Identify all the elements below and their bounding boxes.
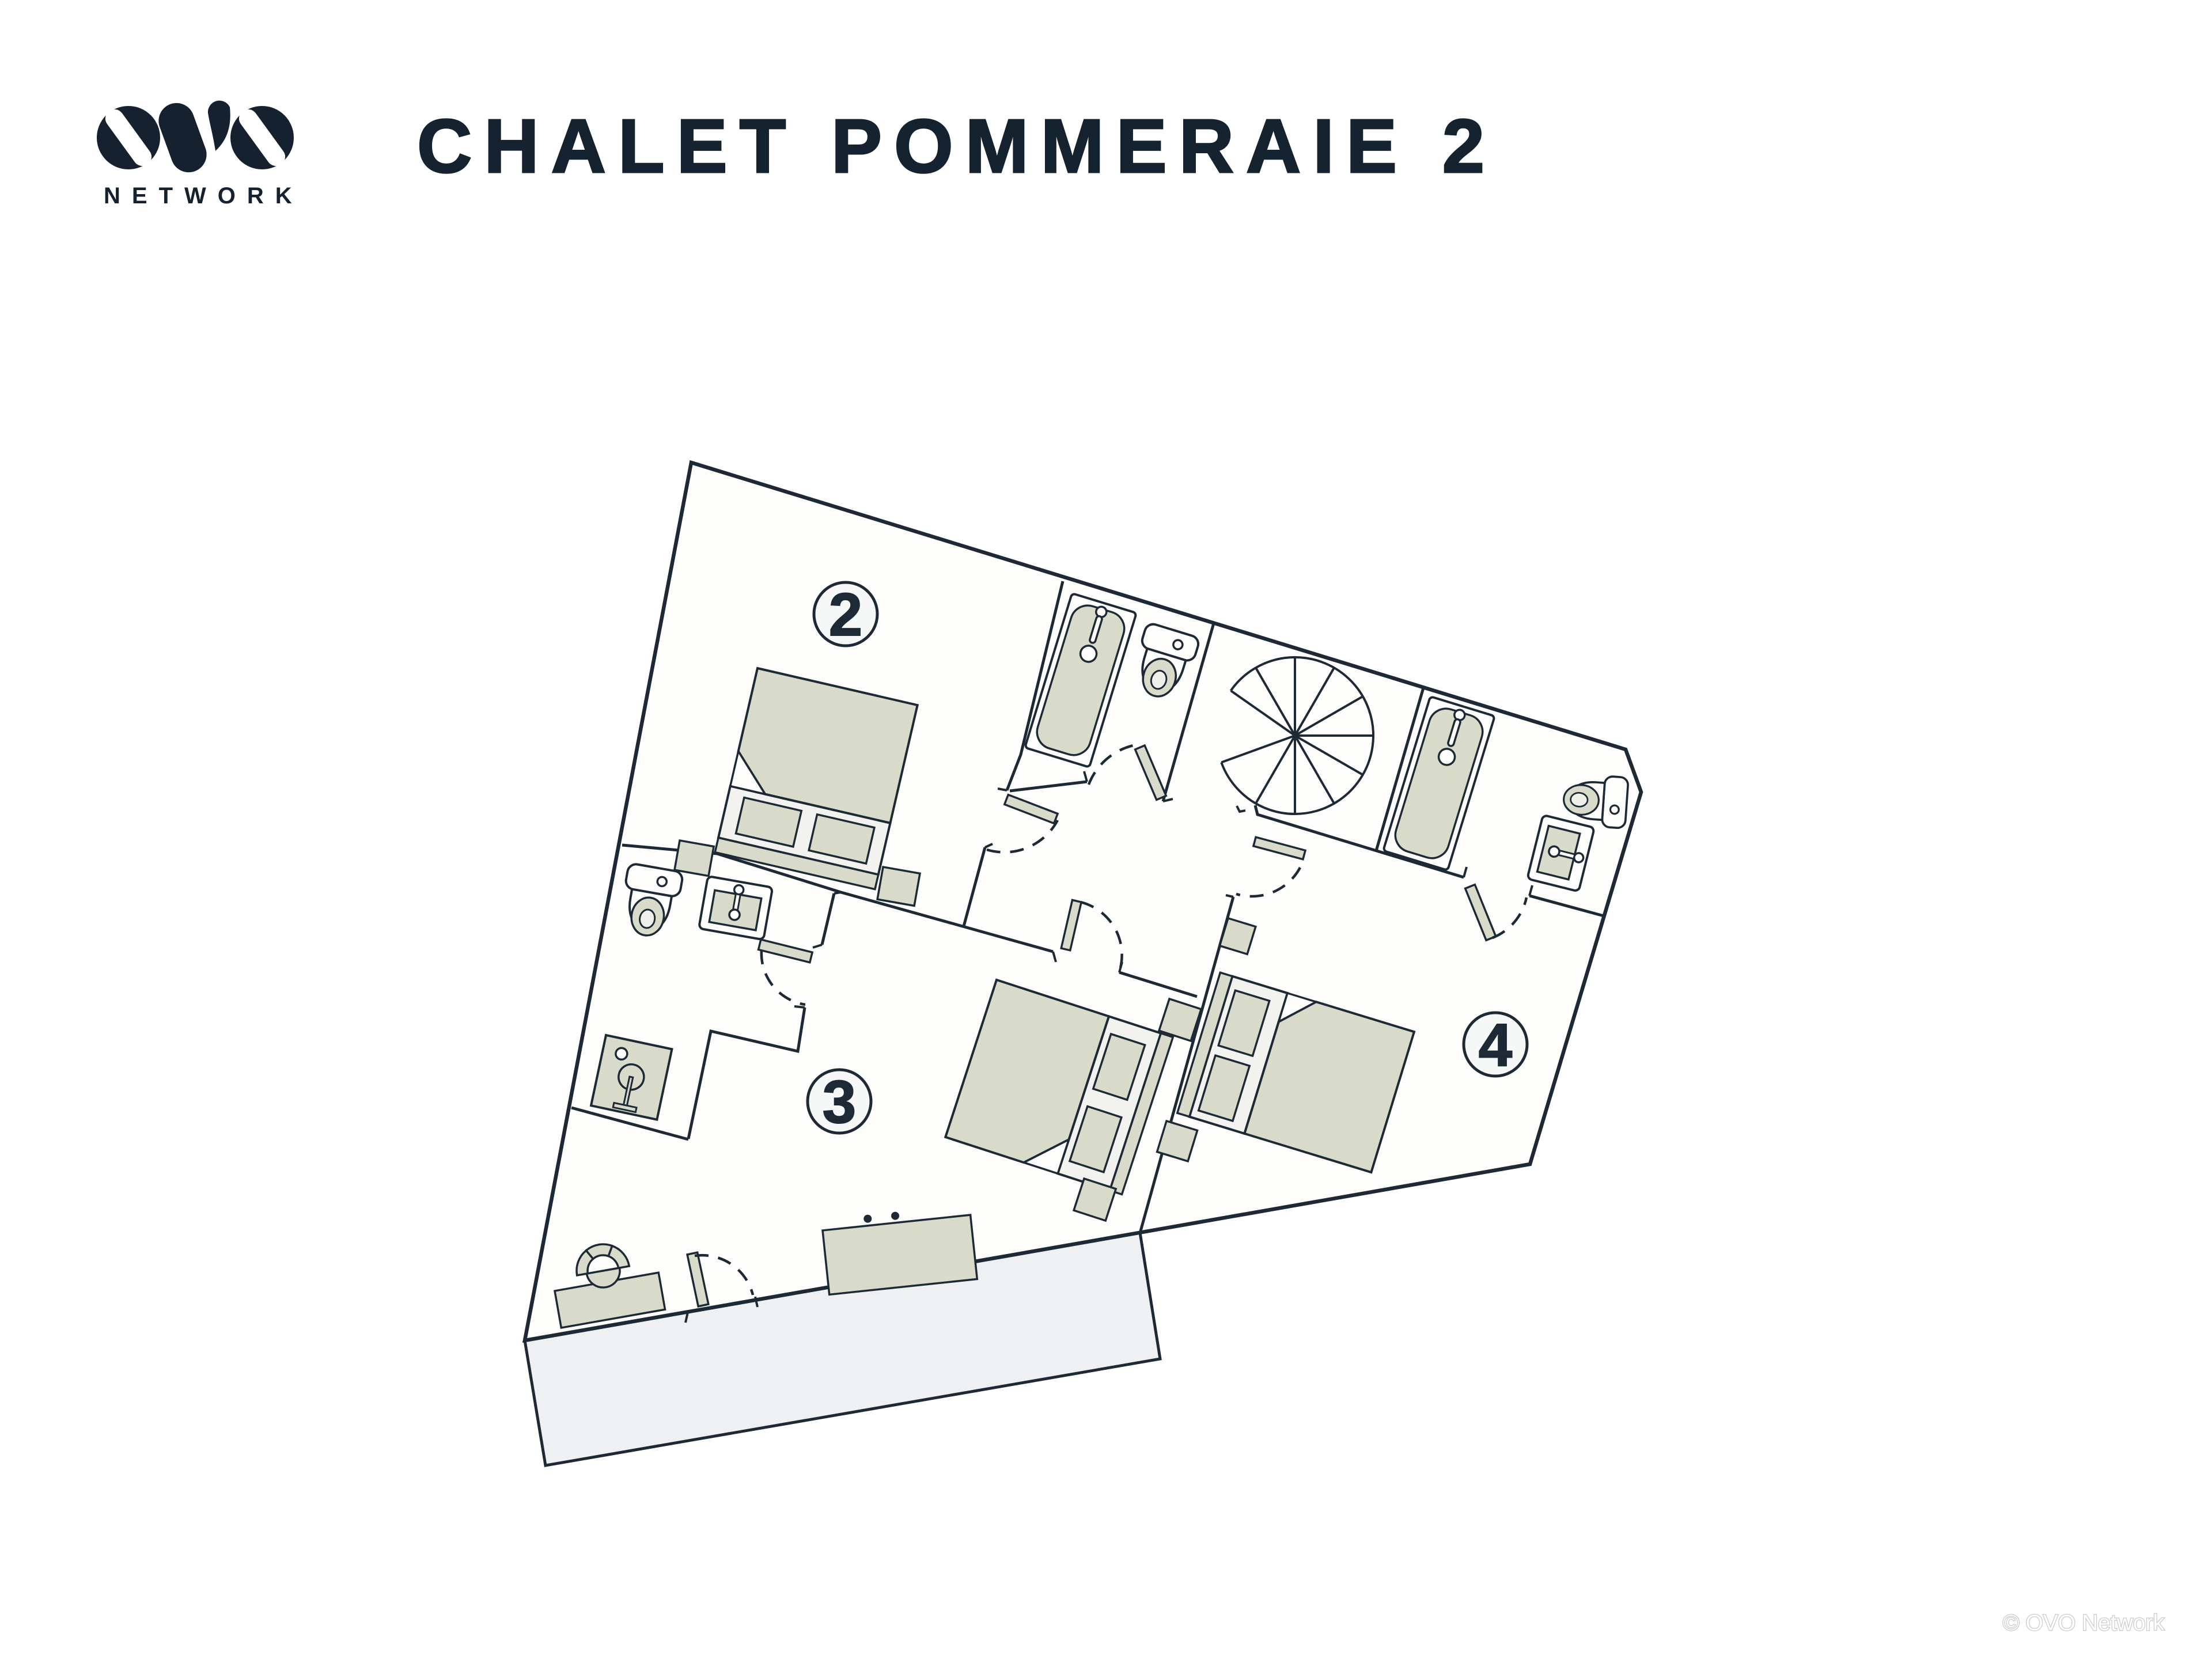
svg-text:2: 2 [829,581,862,649]
svg-text:4: 4 [1479,1012,1512,1079]
svg-text:3: 3 [823,1069,856,1136]
svg-text:© OVO Network: © OVO Network [2003,1611,2165,1635]
svg-text:NETWORK: NETWORK [104,183,304,209]
svg-text:CHALET POMMERAIE 2: CHALET POMMERAIE 2 [417,104,1497,188]
